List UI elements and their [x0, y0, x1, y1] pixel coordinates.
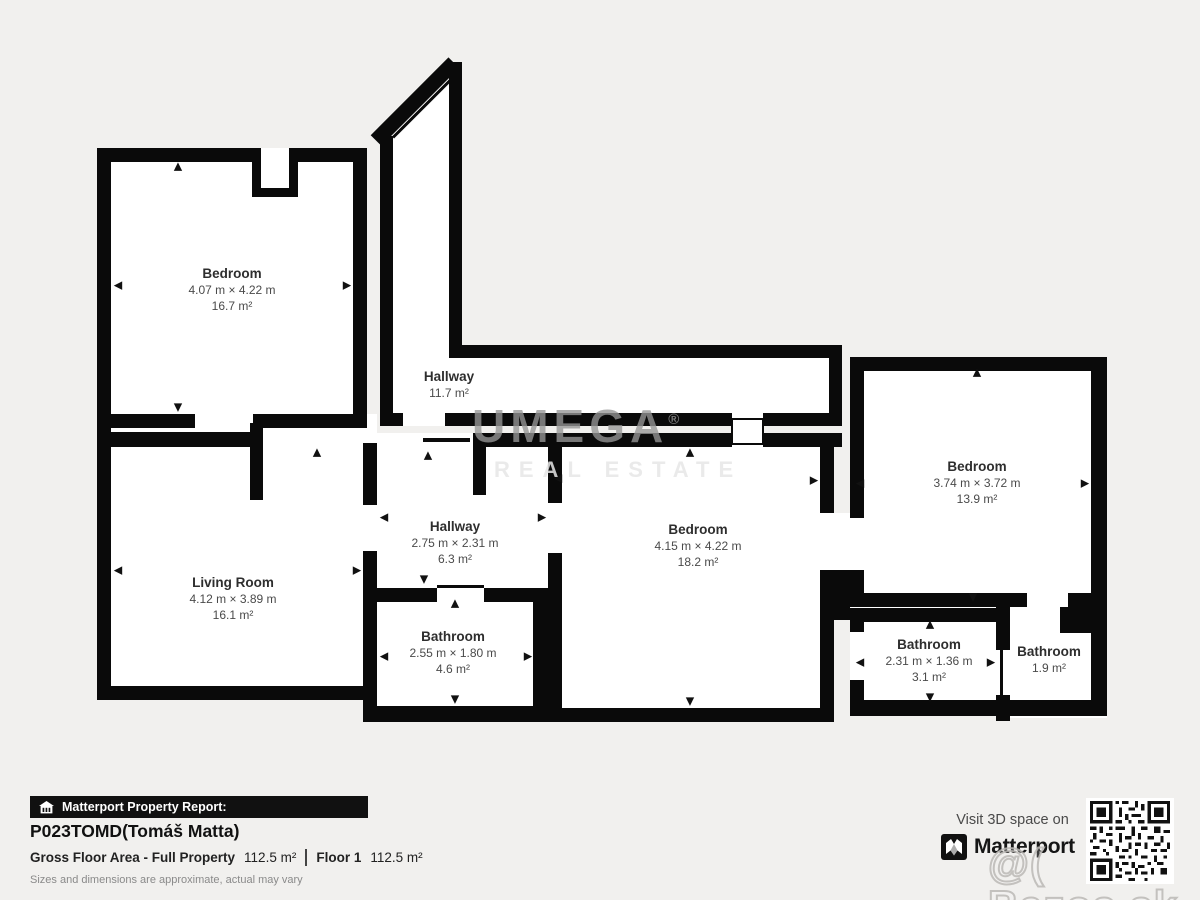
- wall: [820, 433, 834, 513]
- door-line: [1000, 650, 1003, 695]
- room-name: Bathroom: [1017, 644, 1081, 660]
- arrow-up-icon: ▲: [973, 367, 981, 378]
- wall: [1060, 607, 1092, 633]
- wall: [996, 600, 1010, 650]
- arrow-left-icon: ◀: [380, 512, 388, 523]
- room-label-living: Living Room 4.12 m × 3.89 m 16.1 m²: [189, 575, 276, 623]
- wall: [820, 570, 834, 722]
- wall: [380, 136, 393, 426]
- room-name: Bathroom: [409, 629, 496, 645]
- arrow-down-icon: ▼: [926, 692, 934, 703]
- wall: [834, 570, 850, 620]
- room-dimensions: 3.74 m × 3.72 m: [933, 475, 1020, 491]
- wall: [763, 413, 829, 426]
- arrow-right-icon: ▶: [353, 565, 361, 576]
- room-area: 18.2 m²: [654, 554, 741, 570]
- arrow-up-icon: ▲: [313, 447, 321, 458]
- door-line: [423, 438, 470, 442]
- wall: [996, 700, 1107, 716]
- wall: [363, 706, 548, 722]
- room-name: Hallway: [411, 519, 498, 535]
- arrow-left-icon: ◀: [380, 651, 388, 662]
- room-label-bathroom-middle: Bathroom 2.55 m × 1.80 m 4.6 m²: [409, 629, 496, 677]
- wall: [1068, 593, 1105, 607]
- room-label-bedroom-right: Bedroom 3.74 m × 3.72 m 13.9 m²: [933, 459, 1020, 507]
- wall: [252, 188, 298, 197]
- room-area: 16.1 m²: [189, 607, 276, 623]
- arrow-right-icon: ▶: [810, 475, 818, 486]
- room-dimensions: 4.12 m × 3.89 m: [189, 591, 276, 607]
- arrow-down-icon: ▼: [686, 696, 694, 707]
- wall: [250, 423, 263, 500]
- property-report-house-icon: [39, 801, 54, 814]
- floor-value: 112.5 m²: [370, 850, 422, 865]
- room-passage: [834, 513, 850, 570]
- arrow-up-icon: ▲: [686, 447, 694, 458]
- matterport-m-icon: [941, 834, 967, 860]
- area-summary: Gross Floor Area - Full Property 112.5 m…: [30, 849, 423, 866]
- arrow-up-icon: ▲: [174, 161, 182, 172]
- arrow-down-icon: ▼: [451, 694, 459, 705]
- room-name: Bathroom: [885, 637, 972, 653]
- wall: [449, 345, 842, 358]
- room-living: [97, 414, 377, 700]
- arrow-left-icon: ◀: [856, 657, 864, 668]
- divider: [305, 849, 307, 866]
- room-area: 13.9 m²: [933, 491, 1020, 507]
- gfa-label: Gross Floor Area - Full Property: [30, 850, 235, 865]
- room-label-bedroom-topleft: Bedroom 4.07 m × 4.22 m 16.7 m²: [188, 266, 275, 314]
- room-area: 16.7 m²: [188, 298, 275, 314]
- arrow-right-icon: ▶: [524, 651, 532, 662]
- wall: [850, 357, 864, 518]
- arrow-left-icon: ◀: [114, 280, 122, 291]
- room-dimensions: 4.07 m × 4.22 m: [188, 282, 275, 298]
- arrow-down-icon: ▼: [174, 402, 182, 413]
- room-area: 6.3 m²: [411, 551, 498, 567]
- registered-mark: ®: [668, 411, 679, 428]
- arrow-up-icon: ▲: [451, 598, 459, 609]
- room-area: 11.7 m²: [424, 385, 474, 401]
- door-box: [731, 418, 764, 445]
- room-dimensions: 4.15 m × 4.22 m: [654, 538, 741, 554]
- agency-watermark-subtitle: REAL ESTATE: [494, 459, 742, 481]
- arrow-down-icon: ▼: [969, 592, 977, 603]
- arrow-up-icon: ▲: [926, 619, 934, 630]
- wall: [548, 708, 834, 722]
- room-dimensions: 2.31 m × 1.36 m: [885, 653, 972, 669]
- room-label-hallway-middle: Hallway 2.75 m × 2.31 m 6.3 m²: [411, 519, 498, 567]
- room-area: 1.9 m²: [1017, 660, 1081, 676]
- property-title: P023TOMD(Tomáš Matta): [30, 821, 239, 842]
- room-label-bathroom-far-right: Bathroom 1.9 m²: [1017, 644, 1081, 676]
- wall: [850, 608, 864, 632]
- room-name: Hallway: [424, 369, 474, 385]
- wall: [97, 686, 374, 700]
- room-label-hallway-top: Hallway 11.7 m²: [424, 369, 474, 401]
- wall: [97, 414, 195, 428]
- arrow-left-icon: ◀: [856, 478, 864, 489]
- report-header-label: Matterport Property Report:: [62, 800, 227, 814]
- room-label-bedroom-middle: Bedroom 4.15 m × 4.22 m 18.2 m²: [654, 522, 741, 570]
- wall: [449, 62, 462, 352]
- wall: [253, 414, 367, 428]
- floorplan-page: ▲ ◀ ▶ ▼ ▲ ◀ ▶ ▲ ◀ ▶ ▼ ▲ ◀ ▶ ▼ ▲ ◀ ▶ ▼ ▲ …: [0, 0, 1200, 900]
- arrow-down-icon: ▼: [420, 574, 428, 585]
- arrow-up-icon: ▲: [424, 450, 432, 461]
- room-dimensions: 2.55 m × 1.80 m: [409, 645, 496, 661]
- wall: [533, 588, 548, 722]
- report-header-bar: Matterport Property Report:: [30, 796, 368, 818]
- room-dimensions: 2.75 m × 2.31 m: [411, 535, 498, 551]
- arrow-right-icon: ▶: [987, 657, 995, 668]
- floor-label: Floor 1: [316, 850, 361, 865]
- room-name: Bedroom: [654, 522, 741, 538]
- wall: [393, 413, 403, 426]
- disclaimer: Sizes and dimensions are approximate, ac…: [30, 874, 303, 886]
- door-line: [195, 437, 253, 440]
- wall: [353, 148, 367, 428]
- agency-watermark: UMEGA®: [472, 403, 679, 449]
- room-name: Living Room: [189, 575, 276, 591]
- arrow-right-icon: ▶: [538, 512, 546, 523]
- room-name: Bedroom: [933, 459, 1020, 475]
- visit-3d-text: Visit 3D space on: [940, 812, 1085, 828]
- arrow-right-icon: ▶: [1081, 478, 1089, 489]
- room-label-bathroom-right: Bathroom 2.31 m × 1.36 m 3.1 m²: [885, 637, 972, 685]
- wall: [97, 428, 111, 700]
- wall: [363, 551, 377, 720]
- wall: [363, 443, 377, 505]
- arrow-right-icon: ▶: [343, 280, 351, 291]
- bazos-watermark: @( Bazos.sk: [988, 843, 1200, 900]
- room-area: 3.1 m²: [885, 669, 972, 685]
- wall: [97, 148, 111, 428]
- arrow-left-icon: ◀: [114, 565, 122, 576]
- gfa-value: 112.5 m²: [244, 850, 296, 865]
- wall: [548, 553, 562, 722]
- room-area: 4.6 m²: [409, 661, 496, 677]
- room-name: Bedroom: [188, 266, 275, 282]
- wall: [363, 588, 437, 602]
- wall: [829, 345, 842, 426]
- wall: [1091, 357, 1107, 607]
- door-line: [437, 585, 484, 588]
